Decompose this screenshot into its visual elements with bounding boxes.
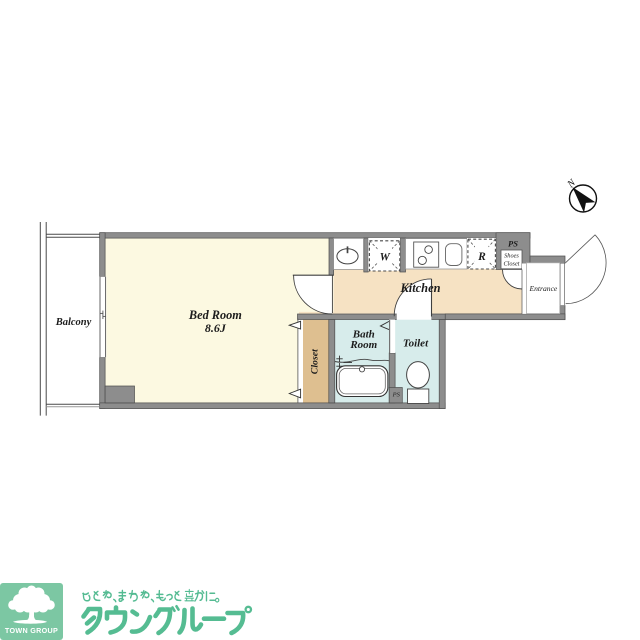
svg-text:W: W (380, 251, 391, 263)
svg-text:PS: PS (508, 239, 518, 249)
svg-text:Bed Room: Bed Room (188, 308, 242, 322)
svg-text:8.6J: 8.6J (205, 321, 227, 335)
svg-text:Closet: Closet (310, 349, 321, 374)
svg-text:Shoes: Shoes (504, 253, 519, 260)
svg-text:Closet: Closet (503, 261, 519, 268)
svg-text:Room: Room (349, 339, 377, 351)
svg-text:Toilet: Toilet (403, 338, 429, 350)
svg-text:R: R (477, 251, 486, 263)
svg-text:PS: PS (392, 392, 401, 399)
svg-text:Entrance: Entrance (528, 284, 557, 293)
svg-text:Balcony: Balcony (55, 317, 92, 328)
svg-text:Kitchen: Kitchen (400, 281, 441, 295)
svg-text:TOWN GROUP: TOWN GROUP (5, 626, 58, 635)
